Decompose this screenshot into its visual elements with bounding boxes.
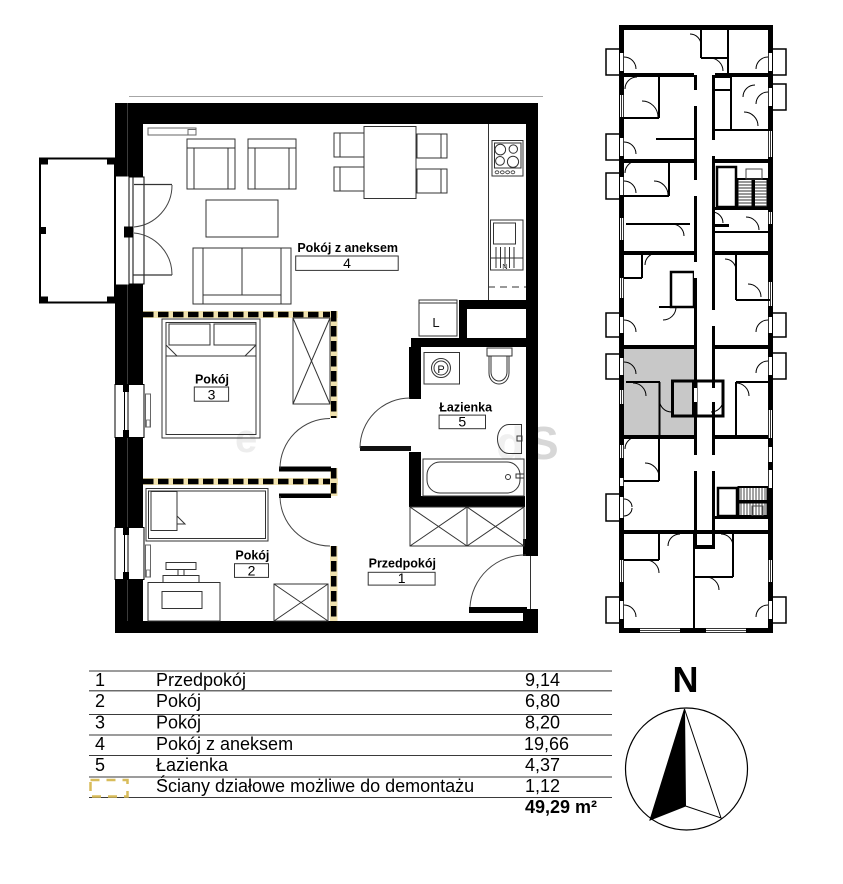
- svg-text:3: 3: [208, 387, 216, 403]
- svg-text:1: 1: [95, 670, 105, 690]
- svg-text:N: N: [502, 262, 507, 271]
- svg-text:Łazienka: Łazienka: [156, 755, 229, 775]
- svg-text:2: 2: [95, 691, 105, 711]
- svg-text:P: P: [437, 364, 444, 376]
- svg-text:4: 4: [95, 734, 105, 754]
- svg-text:4,37: 4,37: [525, 755, 560, 775]
- svg-text:Przedpokój: Przedpokój: [369, 557, 436, 571]
- svg-text:Pokój: Pokój: [235, 549, 269, 563]
- svg-text:6,80: 6,80: [525, 691, 560, 711]
- svg-text:L: L: [432, 315, 439, 330]
- svg-text:Pokój: Pokój: [156, 713, 201, 733]
- svg-text:49,29 m²: 49,29 m²: [525, 797, 597, 817]
- svg-text:Przedpokój: Przedpokój: [156, 670, 246, 690]
- svg-text:N: N: [673, 659, 699, 700]
- svg-text:5: 5: [458, 414, 466, 430]
- svg-text:Pokój: Pokój: [195, 373, 229, 387]
- svg-text:5: 5: [95, 755, 105, 775]
- svg-text:1,12: 1,12: [525, 776, 560, 796]
- svg-text:9,14: 9,14: [525, 670, 560, 690]
- svg-text:8,20: 8,20: [525, 713, 560, 733]
- svg-text:Pokój z aneksem: Pokój z aneksem: [156, 734, 293, 754]
- svg-text:19,66: 19,66: [524, 734, 569, 754]
- svg-text:Pokój z aneksem: Pokój z aneksem: [297, 241, 398, 255]
- svg-text:2: 2: [248, 563, 256, 579]
- svg-text:Łazienka: Łazienka: [439, 401, 493, 415]
- svg-text:Pokój: Pokój: [156, 691, 201, 711]
- svg-text:3: 3: [95, 713, 105, 733]
- svg-text:1: 1: [398, 570, 406, 586]
- svg-text:Ściany działowe możliwe do dem: Ściany działowe możliwe do demontażu: [156, 775, 474, 796]
- svg-text:4: 4: [343, 255, 351, 271]
- svg-text:e: e: [235, 417, 257, 461]
